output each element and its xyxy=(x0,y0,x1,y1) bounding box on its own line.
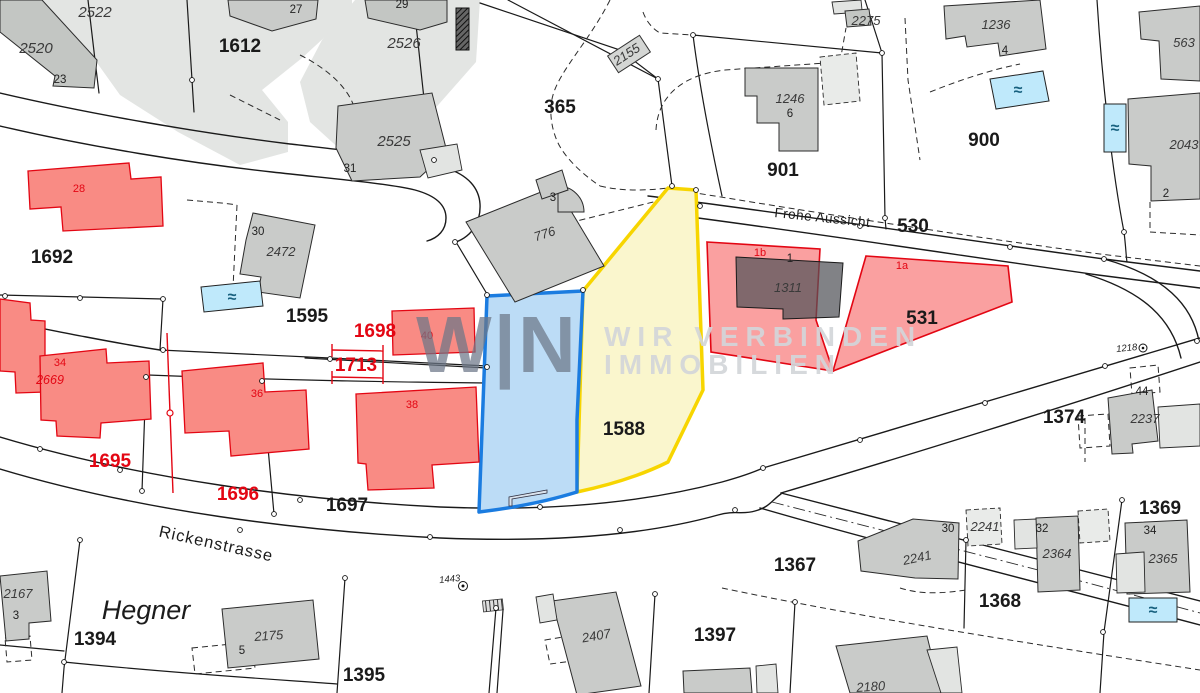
pool-wave-icon: ≈ xyxy=(1111,120,1120,137)
map-label-23: 23 xyxy=(54,74,67,86)
boundary-vertex xyxy=(238,528,243,533)
road-right-connector xyxy=(1104,259,1199,341)
pool-wave-icon: ≈ xyxy=(1014,82,1023,99)
map-label-1367: 1367 xyxy=(774,555,816,576)
building-2365-annex xyxy=(1116,552,1145,593)
red-building-28 xyxy=(28,163,163,231)
map-label-1374: 1374 xyxy=(1043,407,1086,428)
map-label-2180: 2180 xyxy=(855,678,887,693)
building-2180 xyxy=(836,636,941,693)
building-2237-band xyxy=(1158,404,1200,448)
boundary-vertex xyxy=(78,538,83,543)
red-building-36 xyxy=(182,363,309,456)
map-label-1713: 1713 xyxy=(335,355,377,376)
map-label-530: 530 xyxy=(897,216,929,237)
map-label-29: 29 xyxy=(396,0,409,11)
boundary-vertex xyxy=(656,77,661,82)
map-label-30: 30 xyxy=(942,523,955,535)
map-label-1697: 1697 xyxy=(326,495,368,516)
boundary-vertex xyxy=(964,538,969,543)
boundary-vertex xyxy=(1101,630,1106,635)
boundary-vertex xyxy=(485,293,490,298)
boundary-vertex xyxy=(694,188,699,193)
map-label-frohe-aussicht: Frohe Aussicht xyxy=(774,205,871,230)
boundary-vertex xyxy=(1102,257,1107,262)
map-label-901: 901 xyxy=(767,160,799,181)
boundary-vertex xyxy=(3,294,8,299)
map-label-1: 1 xyxy=(787,253,793,265)
building-1246-annex xyxy=(820,53,860,105)
map-label-44: 44 xyxy=(1136,386,1149,398)
map-label-900: 900 xyxy=(968,130,1000,151)
watermark-logo: W|N xyxy=(416,300,578,390)
boundary-vertex xyxy=(328,357,333,362)
building-2364-annex xyxy=(1014,519,1037,549)
map-label-1218: 1218 xyxy=(1116,342,1139,355)
map-label-31: 31 xyxy=(344,163,357,175)
boundary-vertex xyxy=(428,535,433,540)
building-hatched xyxy=(456,8,469,50)
boundary-vertex xyxy=(670,184,675,189)
map-label-2275: 2275 xyxy=(851,13,882,28)
boundary-vertex xyxy=(691,33,696,38)
boundary-vertex xyxy=(161,297,166,302)
map-label-38: 38 xyxy=(406,399,418,411)
map-label-1612: 1612 xyxy=(219,36,261,57)
boundary-vertex xyxy=(1008,245,1013,250)
boundary-vertex xyxy=(858,438,863,443)
pool-wave-icon: ≈ xyxy=(1149,602,1158,619)
boundary-vertex xyxy=(653,592,658,597)
map-label-1311: 1311 xyxy=(774,280,802,295)
watermark-line1: WIR VERBINDEN xyxy=(604,321,922,352)
boundary-vertex xyxy=(761,466,766,471)
map-label-2043: 2043 xyxy=(1169,137,1200,152)
map-label-2669: 2669 xyxy=(35,373,64,387)
building-2525-annex xyxy=(420,144,462,178)
map-label-1695: 1695 xyxy=(89,451,132,472)
map-label-2167: 2167 xyxy=(3,586,34,601)
map-label-28: 28 xyxy=(73,183,85,195)
map-label-1246: 1246 xyxy=(776,91,806,106)
boundary-vertex xyxy=(618,528,623,533)
map-label-2526: 2526 xyxy=(386,35,421,52)
boundary-vertex xyxy=(1103,364,1108,369)
map-label-1595: 1595 xyxy=(286,306,329,327)
boundary-vertex xyxy=(144,375,149,380)
map-label-2175: 2175 xyxy=(253,627,285,644)
map-label-2: 2 xyxy=(1163,188,1169,200)
building-2364-roof xyxy=(1078,509,1110,543)
boundary-vertex xyxy=(62,660,67,665)
map-label-3: 3 xyxy=(13,610,19,622)
boundary-vertex xyxy=(880,51,885,56)
boundary-vertex xyxy=(1122,230,1127,235)
map-label-2520: 2520 xyxy=(18,40,53,57)
map-label-27: 27 xyxy=(290,4,303,16)
map-label-3: 3 xyxy=(550,192,556,204)
boundary-vertex xyxy=(581,288,586,293)
building-1397-house xyxy=(683,668,752,693)
map-label-1395: 1395 xyxy=(343,665,386,686)
map-label-2525: 2525 xyxy=(376,133,411,150)
building-776 xyxy=(466,186,604,302)
red-buildings xyxy=(0,163,479,490)
building-2167 xyxy=(0,571,51,641)
map-label-1a: 1a xyxy=(896,260,909,272)
map-label-1692: 1692 xyxy=(31,247,73,268)
boundary-vertex xyxy=(453,240,458,245)
map-label-1368: 1368 xyxy=(979,591,1021,612)
map-label-1236: 1236 xyxy=(982,17,1012,32)
map-label-365: 365 xyxy=(544,97,576,118)
map-label-36: 36 xyxy=(251,388,263,400)
map-label-1696: 1696 xyxy=(217,484,259,505)
boundary-vertex xyxy=(538,505,543,510)
map-label-563: 563 xyxy=(1173,35,1195,50)
map-label-2365: 2365 xyxy=(1148,551,1179,566)
map-label-1397: 1397 xyxy=(694,625,736,646)
boundary-vertex xyxy=(494,606,499,611)
boundary-vertex xyxy=(1195,339,1200,344)
map-label-6: 6 xyxy=(787,108,793,120)
boundary-vertex xyxy=(733,508,738,513)
boundary-vertex xyxy=(983,401,988,406)
map-label-2237: 2237 xyxy=(1130,411,1161,426)
boundary-vertex xyxy=(260,379,265,384)
map-label-1b: 1b xyxy=(754,247,766,259)
map-label-2241: 2241 xyxy=(970,519,1000,534)
pool-wave-icon: ≈ xyxy=(228,289,237,306)
boundary-vertex xyxy=(883,216,888,221)
stairs xyxy=(482,599,503,612)
map-label-1369: 1369 xyxy=(1139,498,1181,519)
boundary-vertex xyxy=(272,512,277,517)
map-label-2364: 2364 xyxy=(1042,546,1072,561)
boundary-vertex xyxy=(38,447,43,452)
map-label-34: 34 xyxy=(54,357,66,369)
boundary-vertex xyxy=(161,348,166,353)
boundary-vertex xyxy=(140,489,145,494)
map-label-32: 32 xyxy=(1036,523,1049,535)
boundary-vertex xyxy=(190,78,195,83)
map-label-30: 30 xyxy=(252,226,265,238)
boundary-vertex xyxy=(298,498,303,503)
boundary-vertex xyxy=(1120,498,1125,503)
map-label-hegner: Hegner xyxy=(102,595,192,625)
map-label-4: 4 xyxy=(1002,45,1009,57)
building-2407-annex xyxy=(536,594,557,623)
map-label-1588: 1588 xyxy=(603,419,645,440)
boundary-vertex xyxy=(343,576,348,581)
boundary-vertex xyxy=(432,158,437,163)
map-label-2472: 2472 xyxy=(266,244,297,259)
map-label-34: 34 xyxy=(1144,525,1157,537)
watermark-line2: IMMOBILIEN xyxy=(604,349,842,380)
boundary-vertex xyxy=(698,204,703,209)
map-label-rickenstrasse: Rickenstrasse xyxy=(157,523,275,566)
map-label-2522: 2522 xyxy=(77,4,112,21)
building-1397-annex xyxy=(756,664,778,693)
map-canvas: ≈ ≈ ≈ ≈ 25222520231612272925262525312155… xyxy=(0,0,1200,693)
boundary-vertex xyxy=(78,296,83,301)
building-1246 xyxy=(745,68,818,151)
map-label-1698: 1698 xyxy=(354,321,396,342)
cadastral-map: ≈ ≈ ≈ ≈ 25222520231612272925262525312155… xyxy=(0,0,1200,693)
boundary-vertex xyxy=(793,600,798,605)
map-label-1443: 1443 xyxy=(439,573,462,586)
map-label-5: 5 xyxy=(239,645,245,657)
map-label-1394: 1394 xyxy=(74,629,117,650)
